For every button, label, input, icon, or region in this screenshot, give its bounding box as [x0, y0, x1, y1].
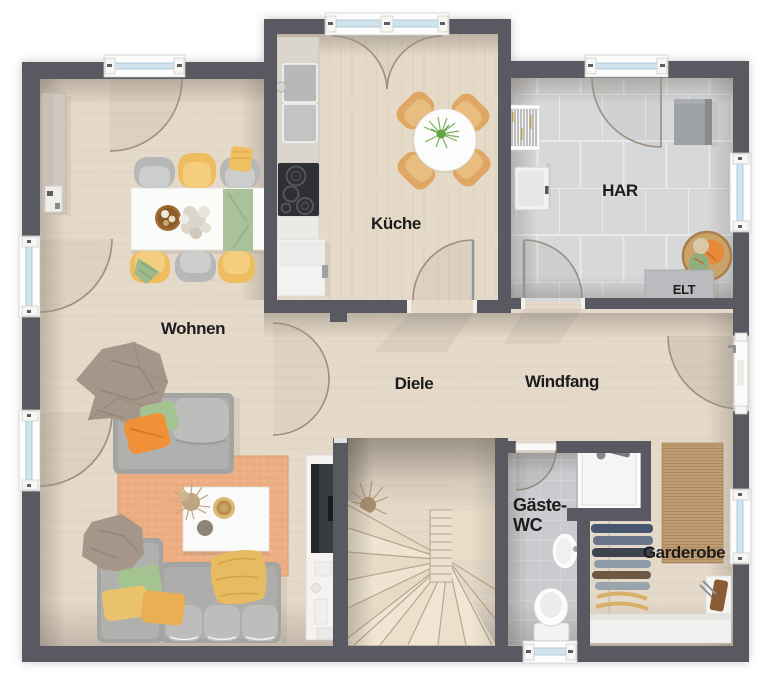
svg-text:WC: WC [513, 515, 543, 535]
svg-text:Diele: Diele [395, 374, 434, 393]
svg-text:Windfang: Windfang [525, 372, 599, 391]
svg-text:HAR: HAR [602, 181, 638, 200]
svg-text:Wohnen: Wohnen [161, 319, 225, 338]
svg-text:Küche: Küche [371, 214, 421, 233]
svg-text:Garderobe: Garderobe [643, 543, 725, 562]
svg-text:Gäste-: Gäste- [513, 495, 567, 515]
svg-text:ELT: ELT [673, 282, 696, 297]
